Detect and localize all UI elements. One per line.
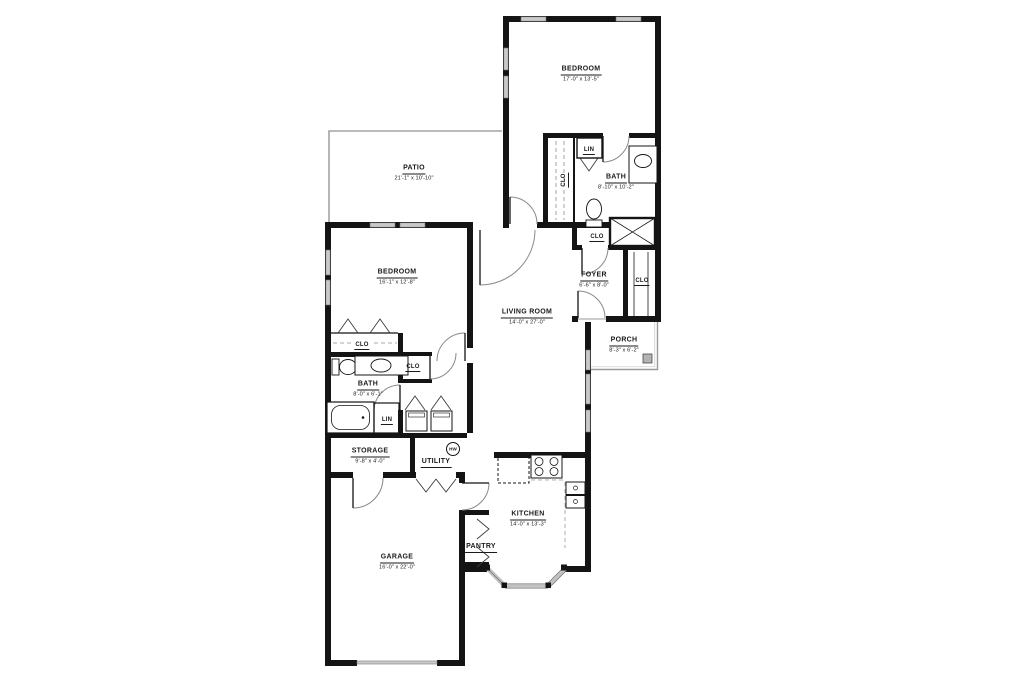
- room-name: LIN: [381, 417, 393, 425]
- room-label-foyer: FOYER 6'-6" x 8'-0": [579, 264, 608, 289]
- room-name: PANTRY: [465, 543, 497, 553]
- room-label-kitchen: KITCHEN 14'-0" x 13'-3": [510, 503, 546, 528]
- room-name: FOYER: [580, 272, 608, 282]
- room-dims: 17'-0" x 13'-5": [561, 77, 602, 83]
- room-label-bedroom-2: BEDROOM 17'-0" x 13'-5": [561, 58, 602, 83]
- room-dims: 14'-0" x 27'-0": [501, 320, 553, 326]
- room-dims: 14'-0" x 13'-3": [510, 522, 546, 528]
- room-dims: 8'-0" x 6'-1": [353, 392, 382, 398]
- sink-lower: [371, 359, 391, 372]
- room-name: CLO: [354, 342, 369, 350]
- room-name: BEDROOM: [377, 269, 418, 279]
- floor-plan-canvas: BEDROOM 17'-0" x 13'-5" LIN CLO BATH 8'-…: [0, 0, 1024, 683]
- room-label-patio: PATIO 21'-1" x 10'-10": [394, 157, 433, 182]
- room-name: CLO: [405, 364, 420, 372]
- room-label-porch: PORCH 8'-3" x 6'-2": [609, 329, 638, 354]
- sink-upper: [635, 155, 652, 168]
- room-label-bath-lower: BATH 8'-0" x 6'-1": [353, 373, 382, 398]
- room-label-storage: STORAGE 9'-8" x 4'-0": [351, 440, 390, 465]
- floor-plan-drawing: [0, 0, 1024, 683]
- room-label-bath-upper: BATH 8'-10" x 10'-2": [598, 166, 634, 191]
- room-name: LIN: [583, 147, 595, 155]
- room-label-closet-bath-lower: CLO: [405, 355, 420, 373]
- bay-window: [484, 565, 567, 589]
- water-heater-label: HW: [449, 447, 457, 452]
- room-label-linen-lower: LIN: [381, 408, 393, 426]
- refrigerator: [498, 457, 529, 483]
- room-label-utility: UTILITY: [421, 450, 452, 468]
- room-label-pantry: PANTRY: [465, 535, 497, 553]
- room-name: GARAGE: [380, 554, 415, 564]
- room-name: PATIO: [402, 165, 426, 175]
- room-label-garage: GARAGE 16'-0" x 22'-0": [379, 546, 415, 571]
- room-dims: 6'-6" x 8'-0": [579, 283, 608, 289]
- toilet-upper-bowl: [587, 199, 602, 219]
- room-name: CLO: [561, 172, 569, 187]
- room-label-linen-upper: LIN: [583, 138, 595, 156]
- room-label-closet-upper: CLO: [552, 172, 570, 187]
- garage-door: [357, 661, 437, 664]
- room-label-closet-bedroom-1: CLO: [354, 333, 369, 351]
- room-dims: 16'-0" x 22'-0": [379, 565, 415, 571]
- shower: [610, 218, 655, 246]
- room-label-bedroom-1: BEDROOM 16'-1" x 12'-8": [377, 261, 418, 286]
- room-label-closet-foyer-top: CLO: [589, 225, 604, 243]
- room-dims: 16'-1" x 12'-8": [377, 280, 418, 286]
- room-name: LIVING ROOM: [501, 309, 553, 319]
- room-label-closet-foyer-right: CLO: [634, 269, 649, 287]
- room-name: CLO: [634, 278, 649, 286]
- room-name: CLO: [589, 234, 604, 242]
- room-dims: 8'-3" x 6'-2": [609, 348, 638, 354]
- washer-dryer: [406, 411, 452, 431]
- room-name: KITCHEN: [510, 511, 545, 521]
- room-label-living-room: LIVING ROOM 14'-0" x 27'-0": [501, 301, 553, 326]
- room-name: BEDROOM: [561, 66, 602, 76]
- room-name: UTILITY: [421, 458, 452, 468]
- room-name: BATH: [605, 174, 627, 184]
- porch-column: [643, 354, 652, 363]
- room-name: PORCH: [610, 337, 639, 347]
- kitchen-sink: [566, 482, 585, 508]
- bathtub: [327, 402, 374, 433]
- room-name: STORAGE: [351, 448, 390, 458]
- room-dims: 9'-8" x 4'-0": [351, 459, 390, 465]
- room-dims: 8'-10" x 10'-2": [598, 185, 634, 191]
- stove: [531, 455, 562, 478]
- toilet-lower-tank: [332, 359, 339, 375]
- room-name: BATH: [357, 381, 379, 391]
- room-dims: 21'-1" x 10'-10": [394, 176, 433, 182]
